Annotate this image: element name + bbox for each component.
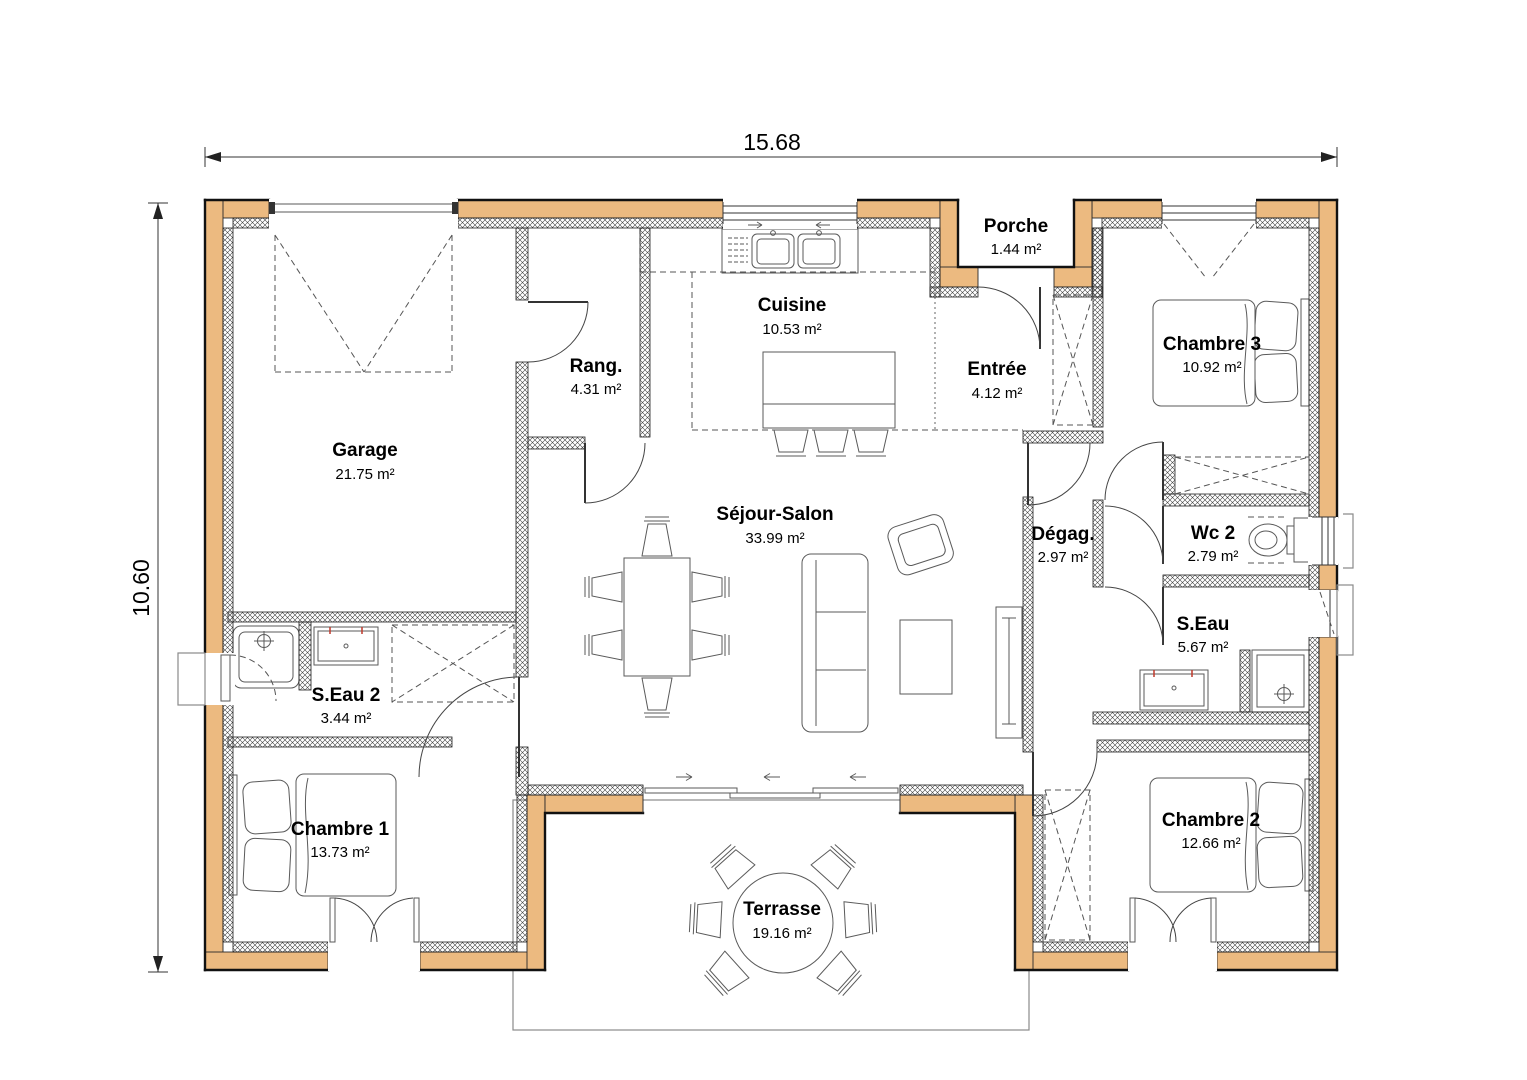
toilet-wc2 xyxy=(1248,517,1310,563)
room-area-sejour: 33.99 m² xyxy=(745,530,804,547)
room-area-rang: 4.31 m² xyxy=(571,381,622,398)
room-area-porche: 1.44 m² xyxy=(991,241,1042,258)
room-area-cuisine: 10.53 m² xyxy=(762,321,821,338)
dining-table-set xyxy=(585,517,729,717)
room-name-porche: Porche xyxy=(984,216,1048,237)
floor-plan-svg: Porche 1.44 m² Cuisine 10.53 m² Rang. 4.… xyxy=(0,0,1527,1080)
room-name-sejour: Séjour-Salon xyxy=(716,504,833,525)
room-name-chambre3: Chambre 3 xyxy=(1163,334,1261,355)
chambre3-window xyxy=(1162,198,1256,278)
vanity-seau2 xyxy=(314,627,378,665)
room-name-degag: Dégag. xyxy=(1031,524,1094,545)
shower-seau xyxy=(1252,650,1309,712)
dimension-height-label: 10.60 xyxy=(128,559,154,617)
room-area-garage: 21.75 m² xyxy=(335,466,394,483)
service-door xyxy=(178,653,276,705)
room-area-seau2: 3.44 m² xyxy=(321,710,372,727)
room-area-terrasse: 19.16 m² xyxy=(752,925,811,942)
dimension-height: 10.60 xyxy=(128,203,168,972)
room-area-chambre1: 13.73 m² xyxy=(310,844,369,861)
terrace-table-set xyxy=(689,842,877,999)
room-area-chambre3: 10.92 m² xyxy=(1182,359,1241,376)
garage-door xyxy=(269,199,458,372)
open-plan-boundaries xyxy=(640,228,1023,430)
room-name-entree: Entrée xyxy=(967,359,1026,380)
room-name-rang: Rang. xyxy=(570,356,623,377)
room-area-chambre2: 12.66 m² xyxy=(1181,835,1240,852)
kitchen-sink-unit xyxy=(722,229,858,273)
room-name-chambre1: Chambre 1 xyxy=(291,819,390,840)
room-name-chambre2: Chambre 2 xyxy=(1162,810,1260,831)
sofa xyxy=(802,554,868,732)
room-area-wc2: 2.79 m² xyxy=(1188,548,1239,565)
room-name-seau2: S.Eau 2 xyxy=(312,685,381,706)
dimension-width-label: 15.68 xyxy=(743,129,801,155)
room-area-seau: 5.67 m² xyxy=(1178,639,1229,656)
room-labels: Porche 1.44 m² Cuisine 10.53 m² Rang. 4.… xyxy=(291,216,1261,942)
room-name-seau: S.Eau xyxy=(1177,614,1230,635)
dimension-width: 15.68 xyxy=(205,128,1337,167)
coffee-table xyxy=(900,620,952,694)
room-name-terrasse: Terrasse xyxy=(743,899,821,920)
doors xyxy=(328,287,1217,971)
room-name-wc2: Wc 2 xyxy=(1191,523,1235,544)
floor-plan-page: Porche 1.44 m² Cuisine 10.53 m² Rang. 4.… xyxy=(0,0,1527,1080)
wc2-window xyxy=(1308,514,1353,568)
room-name-garage: Garage xyxy=(332,440,397,461)
kitchen-window xyxy=(723,198,857,229)
kitchen-island xyxy=(763,352,895,456)
armchair xyxy=(885,512,956,577)
console-plant xyxy=(996,607,1022,738)
room-area-entree: 4.12 m² xyxy=(972,385,1023,402)
room-area-degag: 2.97 m² xyxy=(1038,549,1089,566)
room-name-cuisine: Cuisine xyxy=(758,295,827,316)
sliding-bay-doors xyxy=(643,774,900,814)
vanity-seau xyxy=(1140,670,1208,710)
